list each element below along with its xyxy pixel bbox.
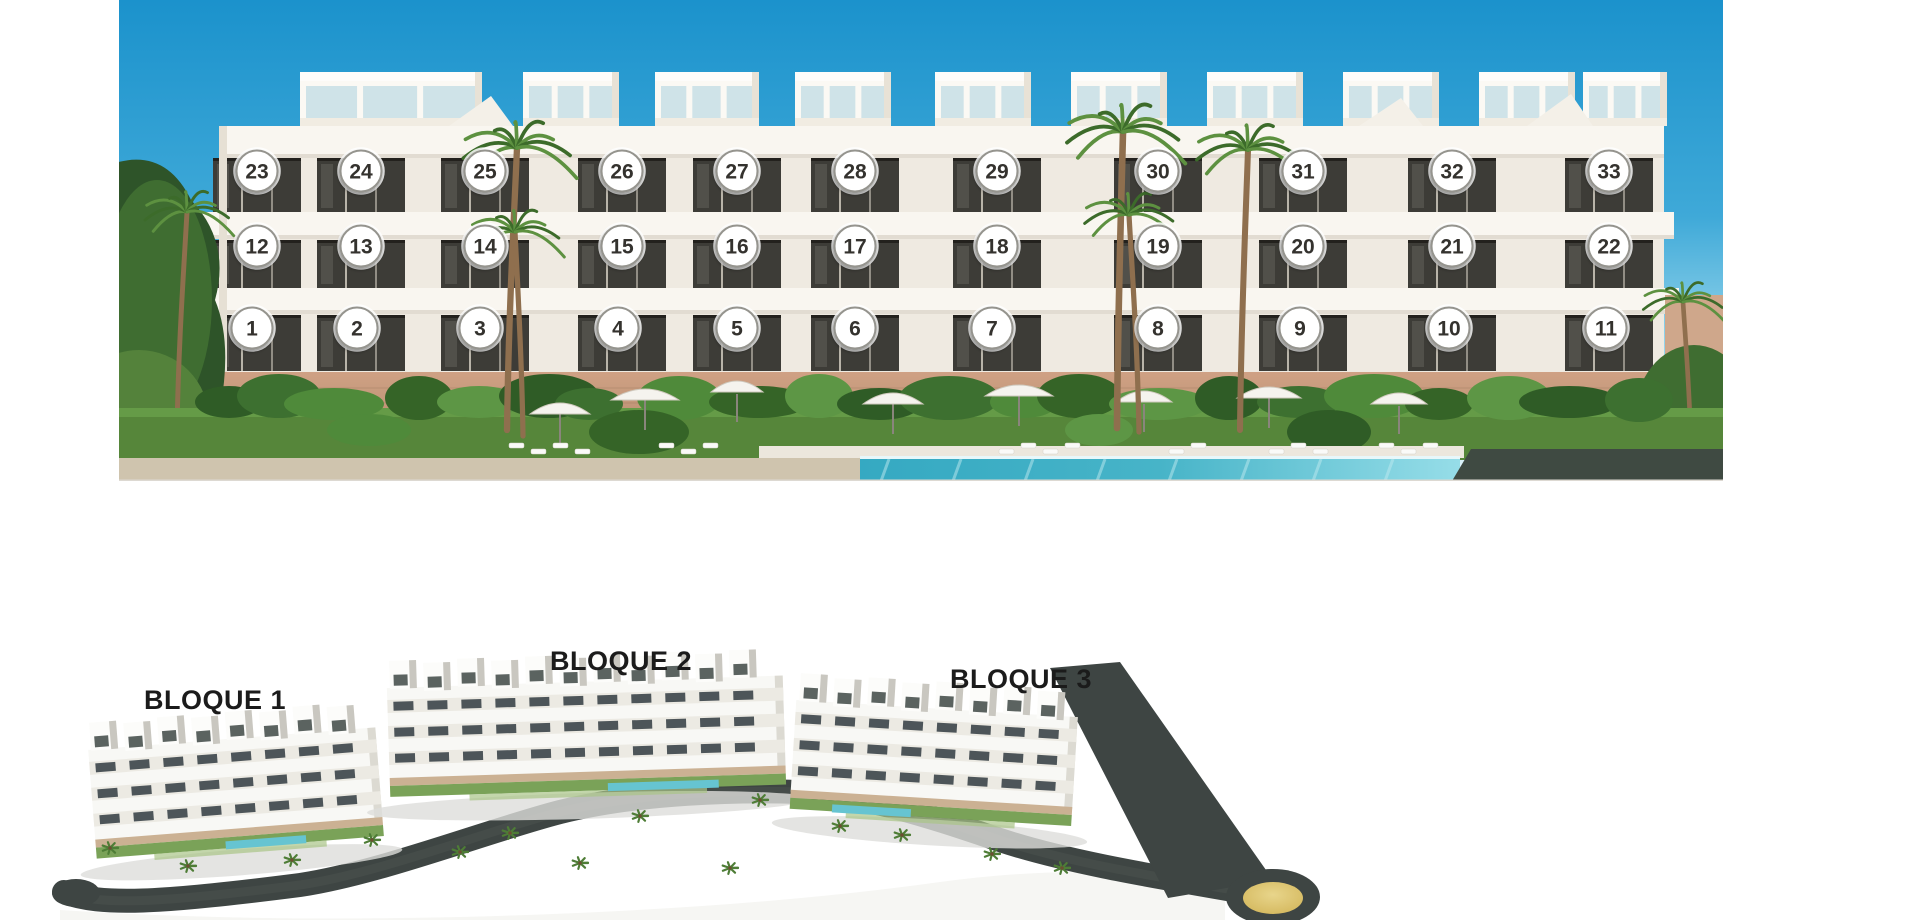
unit-marker-21[interactable]: 21 [1430,224,1475,269]
block-label-1: BLOQUE 1 [144,685,286,715]
unit-number: 1 [246,318,258,341]
unit-marker-8[interactable]: 8 [1136,306,1181,351]
unit-number: 24 [349,161,373,184]
unit-number: 7 [986,318,998,341]
palm-tree-icon [573,857,588,869]
unit-number: 13 [349,236,372,259]
sun-lounger [1043,449,1058,454]
unit-number: 20 [1291,236,1314,259]
sun-lounger [999,449,1014,454]
unit-number: 29 [985,161,1008,184]
sun-lounger [1423,443,1438,448]
unit-number: 33 [1597,161,1620,184]
sun-lounger [1379,443,1394,448]
sun-lounger [659,443,674,448]
facade-photo: 2324252627282930313233121314151617181920… [119,0,1723,481]
roundabout-center [1243,882,1303,914]
sun-lounger [1401,449,1416,454]
unit-marker-32[interactable]: 32 [1430,149,1475,194]
unit-number: 31 [1291,161,1315,184]
unit-number: 28 [843,161,867,184]
unit-marker-19[interactable]: 19 [1136,224,1181,269]
path [119,458,864,481]
unit-number: 14 [473,236,497,259]
unit-marker-13[interactable]: 13 [339,224,384,269]
unit-marker-10[interactable]: 10 [1427,306,1472,351]
unit-marker-3[interactable]: 3 [458,306,503,351]
unit-marker-14[interactable]: 14 [463,224,508,269]
sun-lounger [531,449,546,454]
road-end [52,879,100,907]
unit-marker-27[interactable]: 27 [715,149,760,194]
unit-marker-22[interactable]: 22 [1587,224,1632,269]
sun-lounger [681,449,696,454]
unit-marker-30[interactable]: 30 [1136,149,1181,194]
sun-lounger [1269,449,1284,454]
unit-number: 25 [473,161,497,184]
site-blocks [69,648,1096,888]
unit-number: 17 [843,236,866,259]
block-1-building [69,699,403,888]
unit-number: 12 [245,236,268,259]
sun-lounger [1021,443,1036,448]
bush [1605,378,1673,422]
unit-number: 23 [245,161,268,184]
unit-marker-4[interactable]: 4 [596,306,641,351]
sun-lounger [703,443,718,448]
block-label-3: BLOQUE 3 [950,664,1092,694]
unit-marker-24[interactable]: 24 [339,149,384,194]
unit-number: 30 [1146,161,1169,184]
unit-marker-26[interactable]: 26 [600,149,645,194]
bush [1065,414,1133,446]
unit-marker-7[interactable]: 7 [970,306,1015,351]
unit-number: 8 [1152,318,1164,341]
unit-marker-11[interactable]: 11 [1584,306,1629,351]
unit-marker-29[interactable]: 29 [975,149,1020,194]
unit-number: 9 [1294,318,1306,341]
bush [1109,388,1209,420]
unit-marker-18[interactable]: 18 [975,224,1020,269]
sun-lounger [575,449,590,454]
unit-marker-6[interactable]: 6 [833,306,878,351]
unit-number: 15 [610,236,634,259]
unit-number: 32 [1440,161,1463,184]
unit-marker-31[interactable]: 31 [1281,149,1326,194]
block-label-2: BLOQUE 2 [550,646,692,676]
unit-number: 21 [1440,236,1464,259]
unit-marker-25[interactable]: 25 [463,149,508,194]
unit-number: 5 [731,318,743,341]
unit-marker-17[interactable]: 17 [833,224,878,269]
unit-number: 3 [474,318,486,341]
unit-number: 4 [612,318,624,341]
sun-lounger [509,443,524,448]
page: 2324252627282930313233121314151617181920… [0,0,1920,920]
unit-marker-16[interactable]: 16 [715,224,760,269]
photo-bottom-edge [119,480,1723,482]
palm-tree-icon [723,862,738,874]
unit-marker-1[interactable]: 1 [230,306,275,351]
unit-marker-12[interactable]: 12 [235,224,280,269]
siteplan-photo: BLOQUE 1BLOQUE 2BLOQUE 3 [40,630,1360,920]
swimming-pool [860,456,1460,481]
bush [327,414,411,446]
sun-lounger [1169,449,1184,454]
unit-number: 16 [725,236,748,259]
sun-lounger [553,443,568,448]
unit-number: 19 [1146,236,1169,259]
block-3-building [771,672,1096,855]
sun-lounger [1313,449,1328,454]
unit-marker-23[interactable]: 23 [235,149,280,194]
unit-number: 22 [1597,236,1620,259]
unit-number: 2 [351,318,363,341]
unit-number: 6 [849,318,861,341]
unit-marker-2[interactable]: 2 [335,306,380,351]
unit-number: 18 [985,236,1009,259]
unit-number: 11 [1595,318,1618,341]
bush [1519,386,1619,418]
unit-marker-20[interactable]: 20 [1281,224,1326,269]
unit-marker-28[interactable]: 28 [833,149,878,194]
dark-hedge-panel [1452,449,1723,481]
unit-marker-33[interactable]: 33 [1587,149,1632,194]
unit-marker-9[interactable]: 9 [1278,306,1323,351]
sun-lounger [1065,443,1080,448]
unit-marker-5[interactable]: 5 [715,306,760,351]
sun-lounger [1291,443,1306,448]
unit-number: 27 [725,161,748,184]
unit-number: 26 [610,161,633,184]
unit-marker-15[interactable]: 15 [600,224,645,269]
sun-lounger [1191,443,1206,448]
unit-number: 10 [1437,318,1460,341]
